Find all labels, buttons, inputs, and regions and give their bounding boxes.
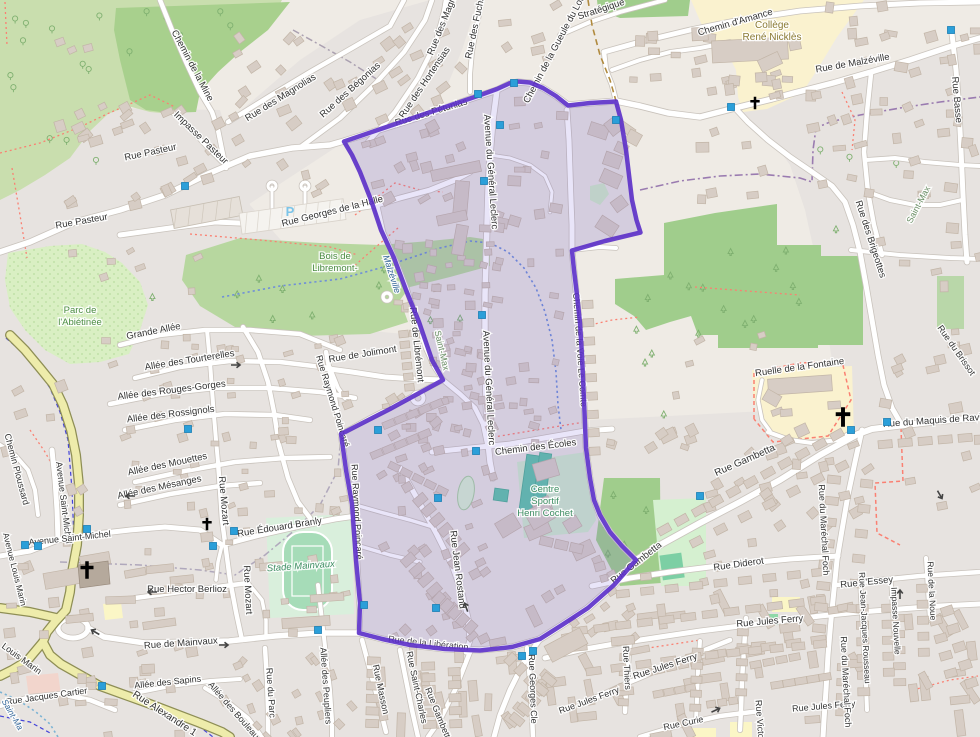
svg-text:René Nicklès: René Nicklès <box>743 32 802 43</box>
svg-text:Bois de: Bois de <box>319 251 351 262</box>
svg-text:Parc de: Parc de <box>64 305 97 316</box>
svg-text:Henri Cochet: Henri Cochet <box>517 508 573 519</box>
svg-text:Collège: Collège <box>755 20 789 31</box>
svg-text:Rue Hector Berlioz: Rue Hector Berlioz <box>147 584 227 595</box>
svg-text:Sportif: Sportif <box>531 496 559 507</box>
svg-text:Centre: Centre <box>531 484 560 495</box>
svg-text:Libremont-: Libremont- <box>312 263 357 274</box>
svg-text:l'Abiétinée: l'Abiétinée <box>58 317 102 328</box>
